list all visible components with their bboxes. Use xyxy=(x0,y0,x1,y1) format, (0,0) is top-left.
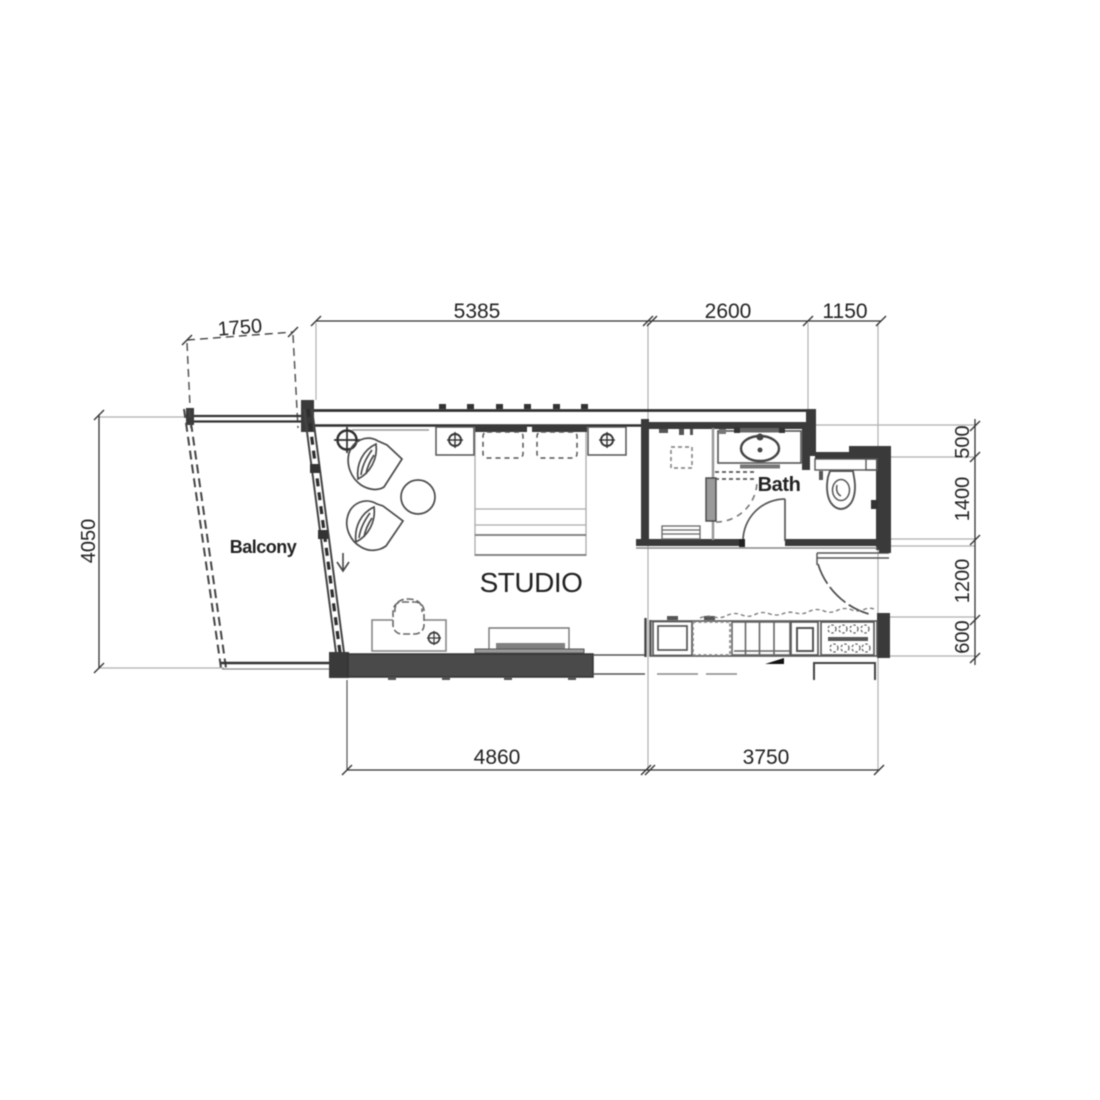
svg-text:500: 500 xyxy=(952,425,974,458)
svg-text:1150: 1150 xyxy=(822,300,867,323)
svg-text:1750: 1750 xyxy=(217,315,263,340)
svg-text:1400: 1400 xyxy=(952,477,974,522)
svg-text:600: 600 xyxy=(952,620,974,653)
svg-text:4860: 4860 xyxy=(474,746,521,769)
svg-text:Balcony: Balcony xyxy=(230,537,297,557)
svg-text:3750: 3750 xyxy=(743,746,790,769)
svg-text:STUDIO: STUDIO xyxy=(480,567,583,598)
svg-text:1200: 1200 xyxy=(952,559,974,604)
svg-text:5385: 5385 xyxy=(454,300,501,323)
svg-text:Bath: Bath xyxy=(758,474,801,496)
svg-text:4050: 4050 xyxy=(78,519,100,564)
svg-text:2600: 2600 xyxy=(705,300,752,323)
